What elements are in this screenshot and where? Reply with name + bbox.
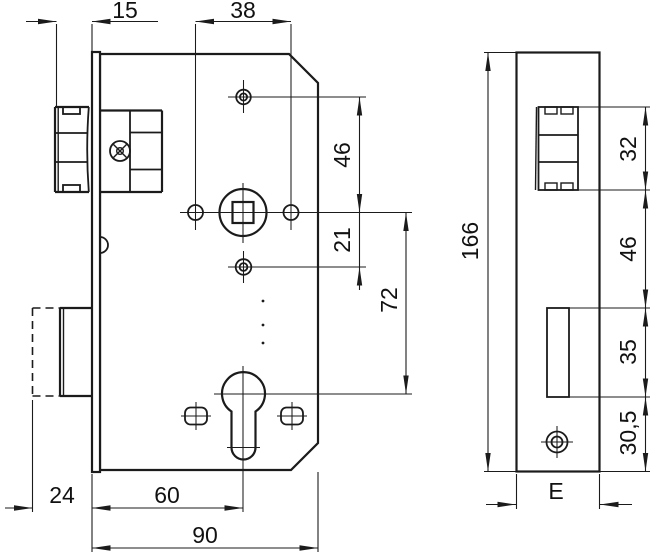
dim-bolt-throw-label: 24	[49, 482, 75, 508]
dim-bolt-cutout-to-bottom-label: 30,5	[615, 411, 641, 456]
dim-bolt-cutout-label: 35	[615, 339, 641, 365]
dim-hole-spacing-label: 38	[230, 0, 256, 23]
dim-latch-cutout-label: 32	[615, 136, 641, 162]
dim-spindle-to-lower-hole-label: 21	[329, 227, 355, 253]
dim-backset-label: 60	[154, 482, 180, 508]
dim-faceplate-length-label: 166	[457, 222, 483, 260]
dim-faceplate-width-label: E	[548, 478, 563, 504]
faceplate-front-view	[517, 53, 600, 472]
technical-drawing-sheet: 15 38 46 21 72 24 60 90 166 32 46 35 30,…	[0, 0, 650, 555]
latch-bolt-side-view	[55, 107, 89, 192]
dim-case-depth-label: 90	[192, 522, 218, 548]
dim-latch-protrusion-label: 15	[112, 0, 138, 23]
dim-spindle-to-cylinder-label: 72	[376, 287, 402, 313]
mortise-lock-drawing: 15 38 46 21 72 24 60 90 166 32 46 35 30,…	[0, 0, 650, 555]
dim-hole-to-spindle-label: 46	[329, 142, 355, 168]
dim-latch-to-bolt-cutout-label: 46	[615, 236, 641, 262]
deadbolt-side-view	[33, 308, 93, 396]
